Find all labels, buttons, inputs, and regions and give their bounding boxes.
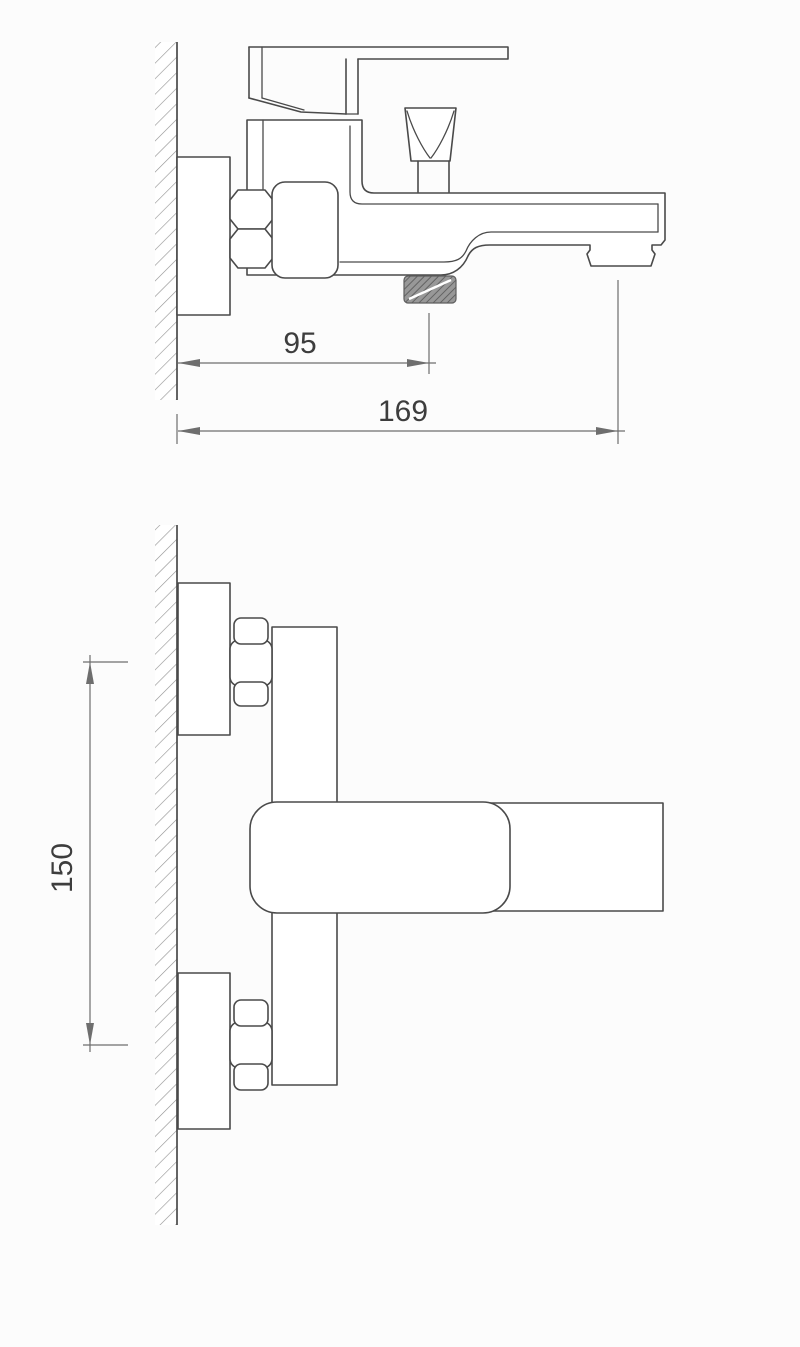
plan-view: 150 bbox=[46, 525, 663, 1225]
arrow-left bbox=[178, 359, 200, 367]
nut-bottom-facet bbox=[234, 1064, 268, 1090]
arrow-down bbox=[86, 1023, 94, 1045]
faucet-technical-drawing: 95 169 bbox=[0, 0, 800, 1347]
hex-nut-bottom-inlet bbox=[230, 1000, 272, 1090]
nut-top-facet bbox=[234, 618, 268, 644]
handle-underside-slant bbox=[249, 98, 346, 114]
handle-lever-bar bbox=[249, 47, 508, 59]
wall-section bbox=[155, 525, 177, 1225]
threaded-shower-outlet bbox=[404, 276, 456, 303]
nut-middle-facet bbox=[230, 1022, 272, 1068]
wall-hatching bbox=[155, 42, 177, 400]
nut-bottom-facet bbox=[234, 682, 268, 706]
dimension-150-label: 150 bbox=[46, 843, 79, 893]
dimension-169: 169 bbox=[177, 280, 625, 444]
mixer-body-top-view bbox=[250, 802, 510, 913]
dimension-95: 95 bbox=[178, 313, 436, 374]
nut-top-facet bbox=[234, 1000, 268, 1026]
arrow-right bbox=[407, 359, 429, 367]
lever-handle bbox=[249, 47, 508, 114]
arrow-left bbox=[178, 427, 200, 435]
arrow-up bbox=[86, 662, 94, 684]
nut-middle-facet bbox=[230, 640, 272, 686]
dimension-150: 150 bbox=[46, 655, 128, 1052]
dimension-169-label: 169 bbox=[378, 395, 428, 428]
diverter-knob bbox=[405, 108, 456, 192]
escutcheon-plate bbox=[177, 157, 230, 315]
arrow-right bbox=[596, 427, 618, 435]
wall-section bbox=[155, 42, 177, 400]
lever-handle-top-view bbox=[488, 803, 663, 911]
hex-nut-lower bbox=[230, 229, 273, 268]
technical-drawing-page: 95 169 bbox=[0, 0, 800, 1347]
side-view: 95 169 bbox=[155, 42, 665, 444]
hex-nut-top-inlet bbox=[230, 618, 272, 706]
diverter-knob-cap bbox=[405, 108, 456, 161]
escutcheon-plate-bottom-inlet bbox=[178, 973, 230, 1129]
escutcheon-plate-top-inlet bbox=[178, 583, 230, 735]
dimension-95-label: 95 bbox=[283, 327, 316, 360]
cartridge-housing bbox=[272, 182, 338, 278]
wall-hatching bbox=[155, 525, 177, 1225]
hex-nut-upper bbox=[230, 190, 273, 229]
